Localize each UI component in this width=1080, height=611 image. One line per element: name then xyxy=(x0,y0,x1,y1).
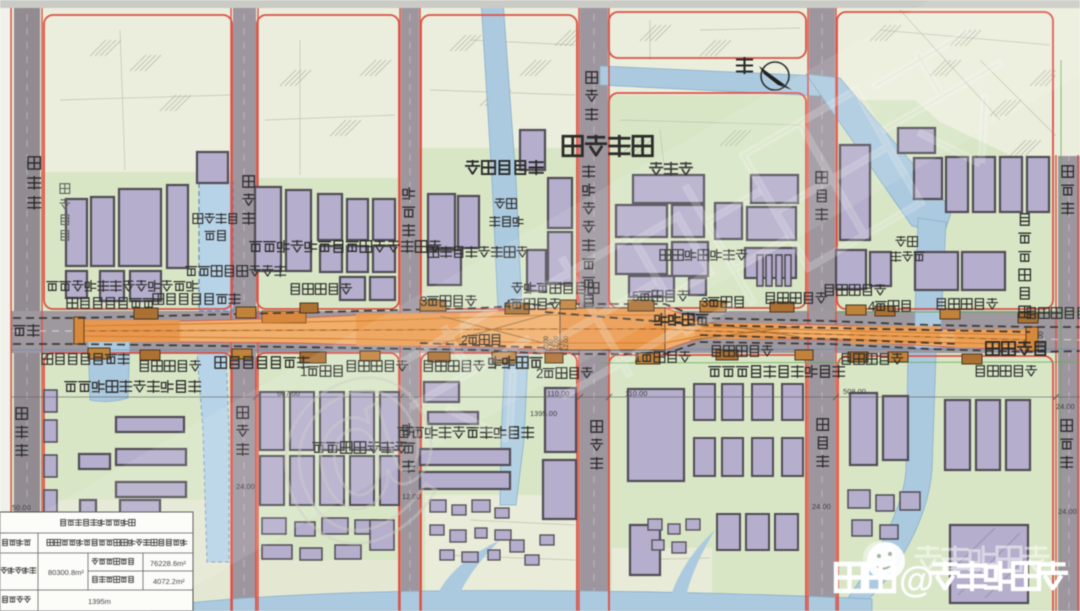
svg-text:@: @ xyxy=(899,559,934,600)
